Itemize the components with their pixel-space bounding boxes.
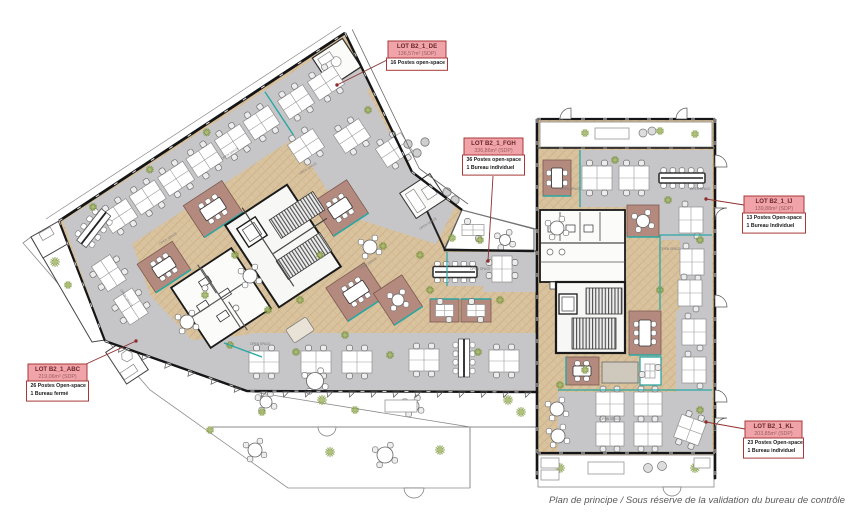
- svg-text:OPEN SPACE: OPEN SPACE: [600, 417, 621, 421]
- svg-text:336,86m² (SDP): 336,86m² (SDP): [474, 148, 513, 154]
- svg-text:OPEN SPACE: OPEN SPACE: [250, 342, 271, 346]
- svg-text:LOT B2_1_FGH: LOT B2_1_FGH: [471, 140, 516, 147]
- svg-text:13 Postes Open-space: 13 Postes Open-space: [747, 215, 802, 221]
- svg-text:LOT B2_1_DE: LOT B2_1_DE: [397, 43, 437, 50]
- svg-text:LOT B2_1_KL: LOT B2_1_KL: [754, 423, 794, 430]
- svg-text:1 Bureau fermé: 1 Bureau fermé: [31, 391, 69, 397]
- svg-text:1 Bureau individuel: 1 Bureau individuel: [748, 448, 796, 454]
- svg-text:OPEN SPACE: OPEN SPACE: [470, 267, 491, 271]
- svg-text:36 Postes open-space: 36 Postes open-space: [467, 157, 522, 163]
- svg-text:203,85m² (SDP): 203,85m² (SDP): [754, 431, 793, 437]
- svg-text:136,57m² (SDP): 136,57m² (SDP): [398, 51, 437, 57]
- svg-text:139,88m² (SDP): 139,88m² (SDP): [755, 206, 794, 212]
- svg-text:OPEN SPACE: OPEN SPACE: [690, 187, 711, 191]
- svg-text:LOT B2_1_ABC: LOT B2_1_ABC: [35, 366, 81, 373]
- svg-text:OPEN SPACE: OPEN SPACE: [560, 187, 581, 191]
- svg-text:OPEN SPACE: OPEN SPACE: [660, 247, 681, 251]
- svg-text:16 Postes open-space: 16 Postes open-space: [391, 60, 446, 66]
- svg-text:LOT B2_1_IJ: LOT B2_1_IJ: [756, 198, 793, 205]
- svg-text:Plan de principe / Sous réserv: Plan de principe / Sous réserve de la va…: [549, 495, 845, 506]
- svg-text:1 Bureau individuel: 1 Bureau individuel: [467, 165, 515, 171]
- svg-text:1 Bureau Individuel: 1 Bureau Individuel: [747, 223, 795, 229]
- svg-text:23 Postes Open-space: 23 Postes Open-space: [748, 440, 803, 446]
- svg-text:26 Postes Open-space: 26 Postes Open-space: [31, 383, 86, 389]
- svg-text:219,06m² (SDP): 219,06m² (SDP): [38, 374, 77, 380]
